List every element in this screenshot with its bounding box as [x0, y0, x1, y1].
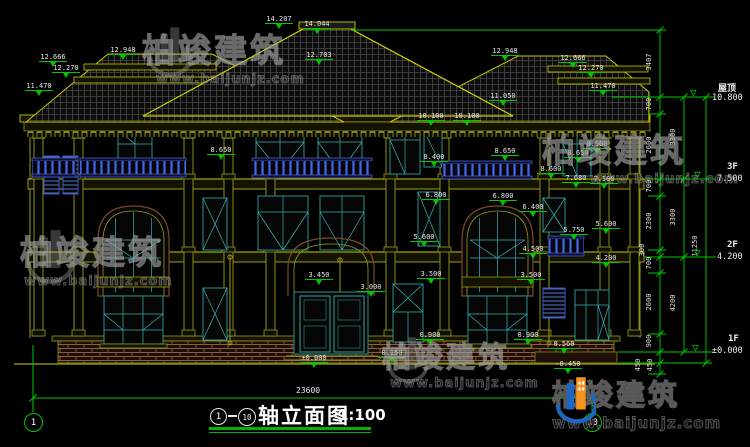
drawing-scale: 1:100	[338, 406, 386, 424]
elevation-marker: 6.400	[516, 203, 550, 217]
elevation-triangle-icon	[276, 24, 282, 29]
elevation-triangle-icon	[120, 55, 126, 60]
elevation-marker: 3.500	[414, 270, 448, 284]
elevation-marker: 0.150	[375, 349, 409, 363]
level-name: 1F	[728, 334, 739, 344]
dim-text: 700	[645, 169, 653, 203]
elevation-triangle-icon	[525, 340, 531, 345]
dim-text: 700	[645, 246, 653, 280]
elevation-triangle-icon	[528, 280, 534, 285]
elevation-triangle-icon	[316, 280, 322, 285]
elevation-marker: 11.050	[486, 92, 520, 106]
elevation-triangle-icon	[561, 349, 567, 354]
elevation-marker: 8.650	[488, 147, 522, 161]
elevation-triangle-icon	[502, 156, 508, 161]
drawing-title: 轴立面图	[258, 400, 350, 430]
elevation-triangle-icon	[603, 229, 609, 234]
elevation-triangle-icon	[421, 242, 427, 247]
elevation-triangle-icon	[573, 183, 579, 188]
level-triangle-icon: ▽	[694, 169, 701, 180]
elevation-triangle-icon	[530, 212, 536, 217]
elevation-triangle-icon	[63, 73, 69, 78]
elevation-marker: 8.650	[204, 146, 238, 160]
elevation-marker: -0.450	[551, 360, 585, 374]
dim-text: 3300	[669, 200, 677, 234]
dim-text: 2600	[645, 128, 653, 162]
elevation-triangle-icon	[565, 369, 571, 374]
elevation-triangle-icon	[431, 162, 437, 167]
elevation-marker: 7.500	[587, 175, 621, 189]
elevation-triangle-icon	[389, 358, 395, 363]
elevation-marker: 4.500	[516, 245, 550, 259]
elevation-marker: 3.000	[354, 283, 388, 297]
dim-text: 2300	[645, 204, 653, 238]
axis-bubble-1: 1	[24, 413, 43, 432]
level-name: 2F	[727, 240, 738, 250]
title-underline-thick	[209, 427, 371, 430]
elevation-marker: 8.400	[417, 153, 451, 167]
elevation-triangle-icon	[571, 235, 577, 240]
elevation-marker: 0.900	[511, 331, 545, 345]
level-triangle-icon: ▽	[694, 247, 701, 258]
elevation-marker: 5.600	[589, 220, 623, 234]
elevation-triangle-icon	[575, 158, 581, 163]
elevation-marker: 5.750	[557, 226, 591, 240]
dim-text: 3407	[645, 45, 653, 79]
elevation-triangle-icon	[218, 155, 224, 160]
elevation-marker: 3.500	[514, 271, 548, 285]
elevation-marker: 6.800	[419, 191, 453, 205]
elevation-marker: ±0.000	[297, 354, 331, 368]
elevation-marker: 8.650	[561, 149, 595, 163]
elevation-marker: 14.044	[300, 20, 334, 34]
dim-text: 450	[634, 348, 642, 382]
elevation-marker: 12.948	[106, 46, 140, 60]
elevation-triangle-icon	[548, 174, 554, 179]
roof	[26, 22, 650, 122]
elevation-triangle-icon	[433, 200, 439, 205]
elevation-marker: 12.270	[574, 64, 608, 78]
title-bubble-end: 10	[238, 408, 256, 426]
elevation-marker: 4.200	[589, 254, 623, 268]
elevation-marker: 3.450	[302, 271, 336, 285]
dim-text: 4200	[669, 286, 677, 320]
elevation-triangle-icon	[36, 91, 42, 96]
elevation-triangle-icon	[314, 29, 320, 34]
dim-text: 2600	[645, 285, 653, 319]
title-bubble-start: 1	[210, 408, 227, 425]
elevation-marker: 10.100	[450, 112, 484, 126]
level-value: 7.500	[717, 174, 743, 184]
level-value: 10.800	[712, 93, 743, 103]
elevation-marker: 12.270	[49, 64, 83, 78]
elevation-triangle-icon	[500, 201, 506, 206]
dim-text: 450	[646, 348, 654, 382]
elevation-triangle-icon	[601, 184, 607, 189]
dim-text: 700	[645, 87, 653, 121]
elevation-triangle-icon	[428, 279, 434, 284]
elevation-triangle-icon	[427, 340, 433, 345]
dim-text: 3300	[669, 120, 677, 154]
elevation-marker: 12.948	[488, 47, 522, 61]
elevation-triangle-icon	[600, 91, 606, 96]
elevation-triangle-icon	[500, 101, 506, 106]
elevation-triangle-icon	[530, 254, 536, 259]
title-underline-thin	[209, 432, 371, 433]
elevation-marker: 5.600	[407, 233, 441, 247]
elevation-triangle-icon	[502, 56, 508, 61]
elevation-marker: 0.900	[413, 331, 447, 345]
elevation-triangle-icon	[311, 363, 317, 368]
level-name: 3F	[727, 162, 738, 172]
level-value: 4.200	[717, 252, 743, 262]
level-value: ±0.000	[712, 346, 743, 356]
elevation-triangle-icon	[464, 121, 470, 126]
elevation-marker: 10.100	[414, 112, 448, 126]
elevation-marker: 14.207	[262, 15, 296, 29]
elevation-marker: 0.560	[547, 340, 581, 354]
elevation-marker: 11.470	[586, 82, 620, 96]
axis-bubble-10: 10	[583, 413, 602, 432]
elevation-marker: 6.800	[486, 192, 520, 206]
elevation-triangle-icon	[588, 73, 594, 78]
level-triangle-icon: ▽	[690, 87, 697, 98]
left-arched-window	[98, 206, 169, 348]
total-width-dimension: 23600	[296, 386, 320, 395]
elevation-triangle-icon	[428, 121, 434, 126]
title-dash	[228, 415, 237, 417]
level-triangle-icon: ▽	[692, 342, 699, 353]
elevation-marker: 11.470	[22, 82, 56, 96]
elevation-triangle-icon	[603, 263, 609, 268]
elevation-triangle-icon	[316, 60, 322, 65]
elevation-triangle-icon	[368, 292, 374, 297]
elevation-marker: 12.703	[302, 51, 336, 65]
cad-elevation-drawing: 14.207 14.044 12.703 12.948 12.666 12.27…	[0, 0, 750, 447]
